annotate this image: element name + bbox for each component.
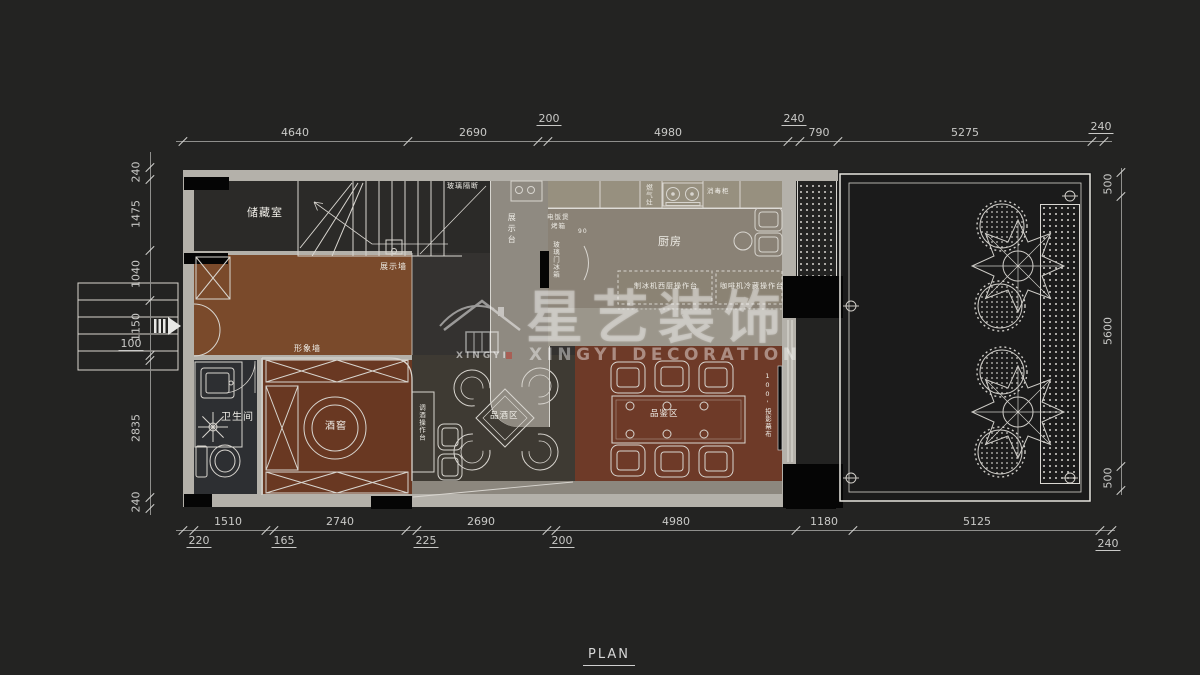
dim-subvalue: 225 [414,535,439,548]
dim-subvalue: 220 [187,535,212,548]
dim-value: 240 [131,162,142,183]
plan-linework [0,0,1200,675]
dim-subvalue: 240 [1096,538,1121,551]
dim-subvalue: 165 [272,535,297,548]
dim-value: 1040 [131,260,142,288]
label-kitchen: 厨房 [658,236,682,249]
dim-value: 500 [1103,174,1114,195]
dim-line-right [1121,168,1122,495]
column-markers [843,191,1078,483]
staircase [298,181,462,256]
label-image-wall: 形象墙 [294,344,321,353]
entry-direction-arrow-icon [154,317,181,335]
entry-cabinet [196,257,230,299]
dim-value: 1475 [131,200,142,228]
label-sampling-area: 品鉴区 [650,410,679,420]
dim-line-bottom [176,530,1115,531]
dim-line-top [176,141,1112,142]
label-bathroom: 卫生间 [221,412,254,424]
dim-subvalue: 240 [1089,121,1114,134]
dim-value: 4640 [281,127,309,138]
dim-subvalue: 200 [550,535,575,548]
label-island-west: 制冰机西厨操作台 [634,282,698,290]
dim-value: 1510 [214,516,242,527]
label-gas-stove: 燃气灶 [644,184,651,207]
label-bar-counter: 调酒操作台 [417,404,424,442]
dim-subvalue: 100 [119,338,144,351]
label-display-counter: 展示台 [507,213,516,246]
dim-value: 500 [1103,468,1114,489]
window-glass-lines [788,320,792,462]
entry-door [194,304,220,356]
dim-subvalue: 240 [782,113,807,126]
label-storage-room: 储藏室 [247,207,283,220]
dim-value: 4980 [662,516,690,527]
courtyard-boundary [840,174,1090,501]
dim-subvalue: 200 [537,113,562,126]
dim-value: 2835 [131,414,142,442]
dim-value: 2690 [467,516,495,527]
label-glass-partition: 玻璃隔断 [447,182,479,190]
dim-line-left [150,152,151,515]
label-sterilizer-cabinet: 消毒柜 [707,188,730,195]
ramp-line [413,482,573,497]
label-wine-cellar: 酒窖 [325,421,347,433]
projection-screen-line [778,366,782,450]
dim-value: 2740 [326,516,354,527]
label-display-wall: 展示墙 [380,262,407,271]
label-rice-cooker: 电饭煲 [547,214,570,221]
dim-value: 240 [131,492,142,513]
dim-value: 2690 [459,127,487,138]
dim-value: 5125 [963,516,991,527]
label-note-90: 90 [578,229,588,236]
plant-cluster [972,201,1064,331]
dim-value: 4980 [654,127,682,138]
label-oven: 烤箱 [551,223,566,230]
dim-value: 5600 [1103,317,1114,345]
label-tasting-area: 品酒区 [490,412,519,422]
dim-value: 5275 [951,127,979,138]
glass-partition-line [420,186,486,254]
label-glass-door-fridge: 玻璃门冰箱 [551,241,558,279]
label-projection-screen: 100'投影幕布 [763,372,770,438]
dim-value: 790 [809,127,830,138]
dim-value: 1180 [810,516,838,527]
floor-plan-canvas: XINGYI 星艺装饰 XINGYI DECORATION PLAN 储藏室厨房… [0,0,1200,675]
label-island-coffee: 咖啡机冷藏操作台 [720,282,784,290]
plan-title: PLAN [583,647,635,666]
